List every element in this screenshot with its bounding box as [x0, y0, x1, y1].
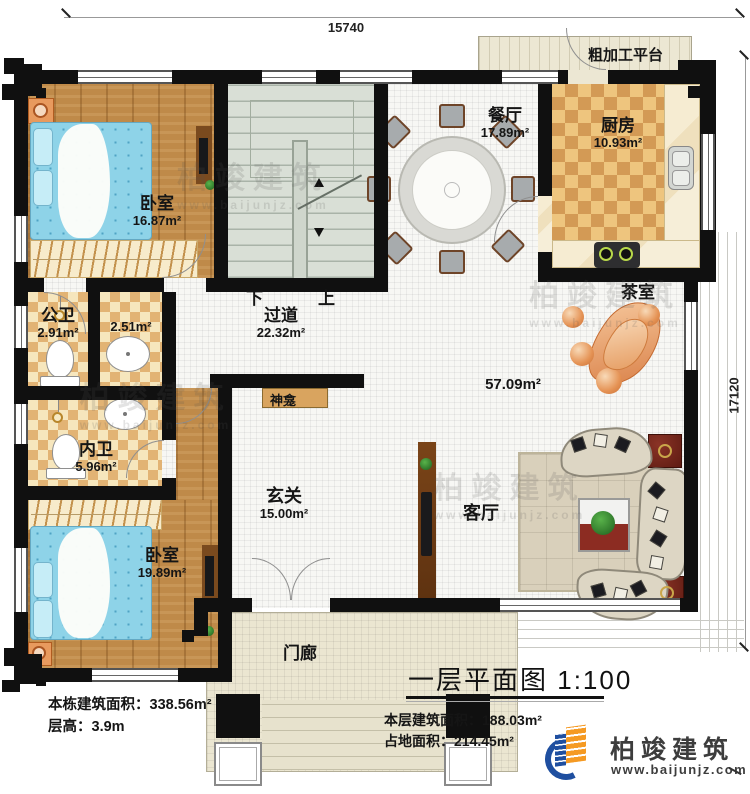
- wall-kitchen-left: [538, 84, 552, 196]
- stair-up-label: 上: [318, 284, 335, 309]
- corner-pilaster: [700, 82, 716, 120]
- right-dimension-line: [745, 56, 746, 648]
- wall-entry-bottom: [330, 598, 500, 612]
- platform-label: 粗加工平台: [588, 44, 663, 65]
- window: [14, 548, 28, 612]
- tv-icon: [205, 556, 214, 596]
- wall-bath-divider: [88, 292, 100, 386]
- chair-icon: [439, 104, 465, 128]
- window: [262, 70, 316, 84]
- room-label-public-bath: 公卫2.91m²: [37, 306, 78, 340]
- window: [684, 302, 698, 370]
- porch-label: 门廊: [283, 644, 317, 664]
- pillow-icon: [33, 600, 53, 638]
- logo-building-icon: [555, 733, 566, 767]
- window: [701, 134, 715, 230]
- wall-right: [684, 268, 698, 302]
- room-label-hallway: 过道22.32m²: [257, 306, 305, 340]
- burner-icon: [599, 247, 613, 261]
- top-dimension-label: 15740: [316, 20, 376, 35]
- wall-porch-nub: [194, 598, 220, 612]
- wall-bath-middle: [14, 386, 176, 400]
- lamp-icon: [33, 103, 48, 118]
- wall-porch-nub: [194, 612, 208, 636]
- room-label-living: 客厅: [463, 503, 499, 524]
- corner-pilaster: [36, 676, 46, 686]
- sofa: [635, 467, 691, 581]
- window: [340, 70, 412, 84]
- room-label-bedroom-2: 卧室19.89m²: [138, 546, 186, 580]
- sink-basin: [672, 151, 690, 167]
- room-label-entry: 玄关15.00m²: [260, 486, 308, 522]
- wall-bath-bottom: [14, 486, 176, 500]
- corner-pilaster: [678, 60, 716, 82]
- table-medallion: [658, 444, 672, 458]
- corner-pilaster: [2, 84, 14, 100]
- wall-segment: [14, 278, 44, 292]
- pendant-lamp-icon: [52, 412, 63, 423]
- plant-icon: [591, 511, 615, 535]
- toilet-icon: [46, 340, 74, 378]
- title-underline: [406, 696, 604, 699]
- right-dimension-label: 17120: [727, 366, 742, 426]
- title-underline-thin: [406, 701, 604, 702]
- stair-arrow-icon: [314, 228, 324, 237]
- wall-stair-right: [374, 84, 388, 292]
- basin-drain: [123, 412, 127, 416]
- wall-bath-right: [162, 292, 176, 440]
- room-label-bedroom-1: 卧室16.87m²: [133, 194, 181, 228]
- lazy-susan: [444, 182, 460, 198]
- room-label-washroom: 2.51m²: [110, 320, 151, 335]
- stool-icon: [570, 342, 594, 366]
- floor-kitchen: [552, 84, 664, 240]
- plan-title: 一层平面图 1:100: [408, 660, 632, 697]
- burner-icon: [619, 247, 633, 261]
- pillow-icon: [593, 433, 608, 448]
- platform-door-gap: [568, 70, 608, 84]
- wall-entry-bottom: [218, 598, 252, 612]
- bed-sheet: [58, 124, 110, 238]
- pillow-icon: [649, 555, 664, 570]
- wall-segment: [86, 278, 164, 292]
- basin-drain: [126, 352, 130, 356]
- wall-entry-top: [210, 374, 364, 388]
- wall-corner: [680, 598, 698, 612]
- brand-name: 柏竣建筑: [610, 730, 734, 766]
- stair-rail: [292, 140, 308, 290]
- chair-icon: [439, 250, 465, 274]
- plant-icon: [420, 458, 432, 470]
- floor-plan-page: 15740 17120 粗加工平台 门廊 下 上: [0, 0, 750, 794]
- pillow-icon: [33, 562, 53, 598]
- corner-pilaster: [2, 680, 20, 692]
- stool-icon: [596, 368, 622, 394]
- wall-porch-nub: [182, 630, 194, 642]
- porch-column: [216, 694, 260, 738]
- corner-pilaster: [688, 86, 702, 98]
- porch-column-base: [214, 742, 262, 786]
- window: [78, 70, 172, 84]
- room-label-inner-bath: 内卫5.96m²: [75, 440, 116, 474]
- top-dimension-line: [64, 17, 742, 18]
- note-floor-area: 本层建筑面积：188.03m² 占地面积：214.45m²: [384, 710, 542, 752]
- wall-stair-left: [214, 84, 228, 292]
- tv-icon: [199, 138, 208, 174]
- kitchen-door-gap: [538, 196, 552, 252]
- wall-segment: [206, 278, 388, 292]
- window: [14, 216, 28, 262]
- room-label-dining: 餐厅17.89m²: [481, 106, 529, 140]
- dimension-tick: [739, 50, 749, 60]
- window: [14, 306, 28, 348]
- logo-building-icon: [566, 725, 586, 764]
- sink-basin: [672, 170, 690, 186]
- lamp-cord: [58, 400, 59, 412]
- terrace-edge-right: [700, 232, 744, 652]
- brand-website: www.baijunjz.com: [611, 762, 747, 777]
- tv-icon: [421, 492, 432, 556]
- wall-entry-left: [218, 374, 232, 682]
- bed-sheet: [58, 528, 110, 638]
- pillow-icon: [33, 170, 53, 206]
- room-label-kitchen: 厨房10.93m²: [594, 116, 642, 150]
- window: [502, 70, 558, 84]
- wall-right: [684, 370, 698, 598]
- window: [92, 668, 178, 682]
- shrine-label: 神龛: [270, 390, 296, 409]
- corner-pilaster: [36, 88, 46, 98]
- note-building-total: 本栋建筑面积：338.56m² 层高：3.9m: [48, 694, 212, 738]
- window: [14, 404, 28, 444]
- room-label-tea-room: 茶室: [621, 283, 655, 303]
- stool-icon: [562, 306, 584, 328]
- window-bay: [500, 598, 680, 612]
- room-label-great-room: 57.09m²: [485, 376, 541, 393]
- stair-arrow-icon: [314, 178, 324, 187]
- pillow-icon: [33, 128, 53, 166]
